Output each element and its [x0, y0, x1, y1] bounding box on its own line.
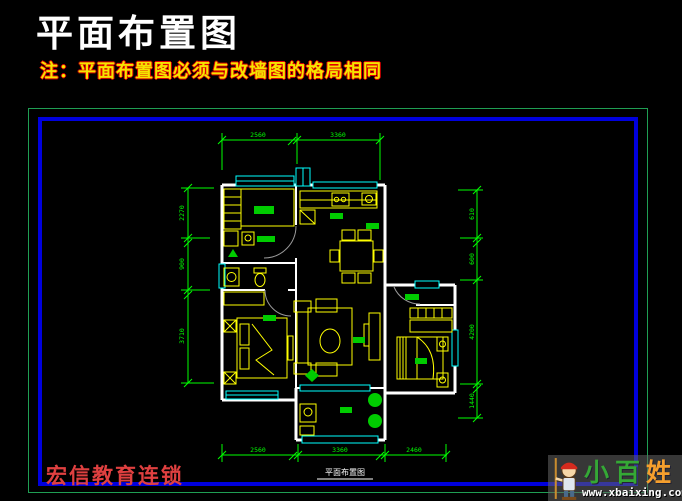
logo-text: 小百姓: [584, 453, 677, 489]
furniture-bathroom: [224, 268, 266, 287]
page-title: 平面布置图: [36, 3, 241, 57]
dim-right-1: 610: [468, 208, 476, 220]
brand-text: 宏信教育连锁: [46, 460, 184, 490]
plant-icon: [368, 414, 382, 428]
dim-top-1: 2560: [250, 131, 266, 139]
dim-bottom-3: 2460: [406, 446, 422, 454]
room-label-marks: [228, 206, 427, 413]
furniture-living-room: [294, 299, 380, 376]
dim-left-3: 3710: [178, 328, 186, 344]
logo-char-3: 姓: [646, 459, 677, 487]
dim-right-4: 1440: [468, 393, 476, 409]
logo-char-2: 百: [615, 459, 646, 487]
dim-left-2: 900: [178, 258, 186, 270]
dim-right-3: 4200: [468, 324, 476, 340]
plan-caption-text: 平面布置图: [325, 467, 365, 477]
furniture-kitchen: [300, 191, 377, 224]
furniture-master-bedroom: [397, 308, 452, 387]
dim-bottom-2: 3360: [332, 446, 348, 454]
mascot-icon: [550, 456, 582, 501]
walls: [222, 185, 455, 440]
furniture-dining: [330, 230, 383, 283]
plant-icon: [368, 393, 382, 407]
dim-left-1: 2270: [178, 205, 186, 221]
dim-top-2: 3360: [330, 131, 346, 139]
furniture-balcony: [300, 393, 382, 435]
plan-caption: 平面布置图: [317, 467, 373, 479]
logo-url: www.xbaixing.com: [582, 486, 682, 499]
furniture-bedroom-bottom-left: [224, 292, 293, 384]
watermark-logo: 小百姓 www.xbaixing.com: [548, 455, 682, 501]
logo-char-1: 小: [584, 459, 615, 487]
dim-right-2: 600: [468, 253, 476, 265]
note-text: 注：平面布置图必须与改墙图的格局相同: [40, 57, 382, 83]
dim-bottom-1: 2560: [250, 446, 266, 454]
